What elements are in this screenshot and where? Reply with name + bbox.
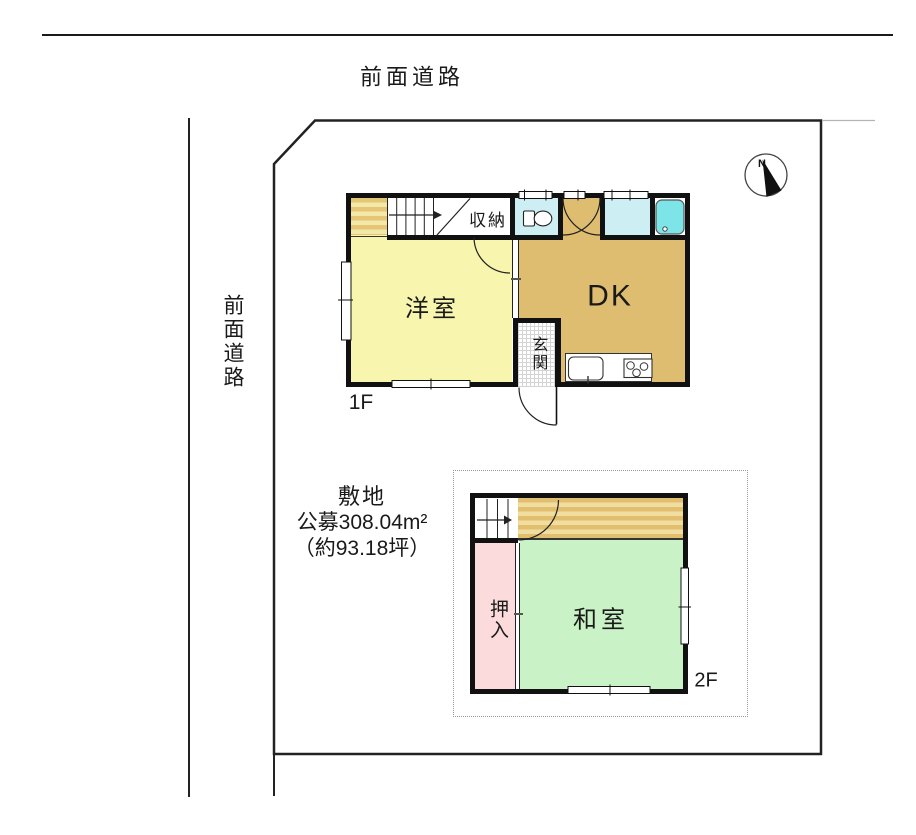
room-label-japanese: 和室 [573,607,629,632]
floor2-label: 2F [694,671,717,692]
floor1-label: 1F [349,392,374,414]
label-left-road: 前面道路 [221,294,243,390]
site-area-title: 敷地 [294,484,431,510]
compass-north-label: N [758,158,766,170]
room-label-western: 洋室 [405,296,459,321]
entrance-door-arc [519,388,557,426]
room-label-storage: 収納 [469,212,507,230]
room-label-dk: DK [587,280,633,312]
site-area-tsubo: （約93.18坪） [294,536,431,562]
room-label-entrance: 玄関 [529,336,546,372]
floor-plan-canvas: N [0,0,916,835]
site-area-label: 敷地 公募308.04m² （約93.18坪） [294,484,431,562]
compass-circle [745,154,787,196]
label-top-road: 前面道路 [360,65,464,88]
room-label-closet: 押入 [487,599,507,641]
site-area-m2: 公募308.04m² [294,510,431,536]
floor2-outer-wall [470,493,688,694]
compass: N [745,154,787,197]
compass-needle-icon [763,160,782,198]
